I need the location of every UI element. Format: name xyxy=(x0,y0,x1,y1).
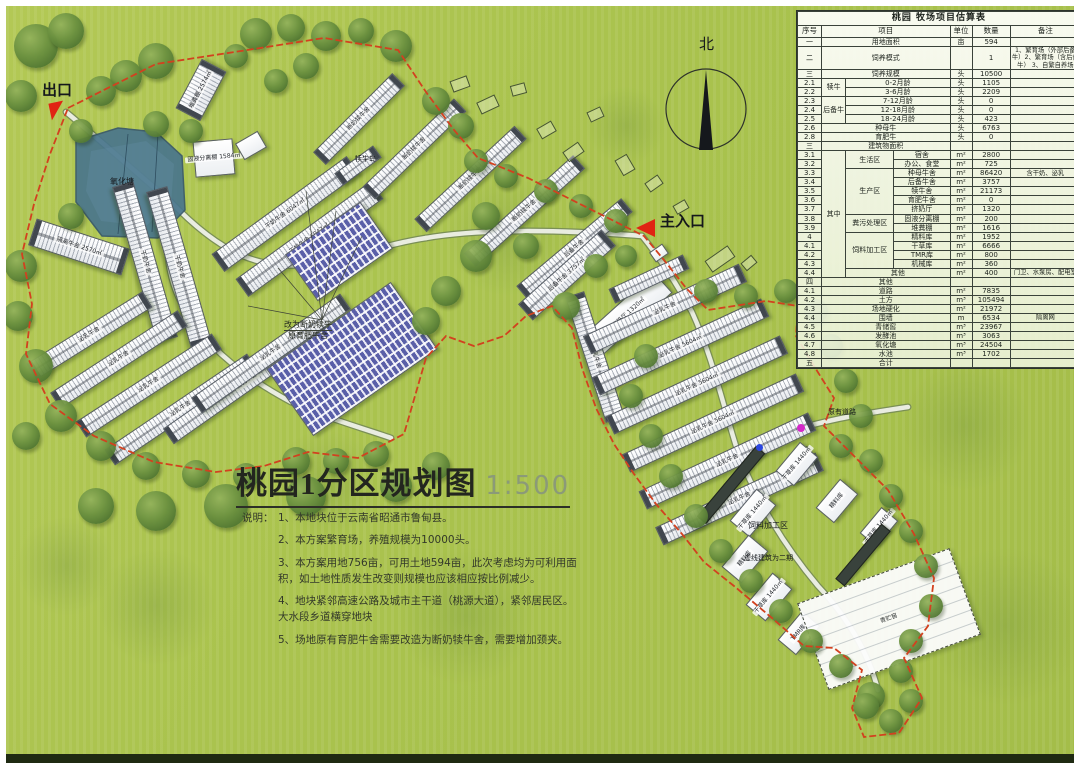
note-item: 2、本方案繁育场，养殖规模为10000头。 xyxy=(242,532,578,548)
table-cell: 宿舍 xyxy=(894,151,950,160)
table-row: 2.8育肥牛头0 xyxy=(798,133,1075,142)
table-cell: 合计 xyxy=(822,359,950,368)
table-cell: 2.1 xyxy=(798,78,822,87)
table-cell xyxy=(1010,359,1074,368)
table-cell: 23967 xyxy=(972,323,1010,332)
table-cell: 三 xyxy=(798,142,822,151)
table-cell xyxy=(1010,223,1074,232)
table-cell: 项目 xyxy=(822,26,950,38)
table-row: 4.5青储窖m³23967 xyxy=(798,323,1075,332)
table-cell: 1105 xyxy=(972,78,1010,87)
note-text: 1、本地块位于云南省昭通市鲁甸县。 xyxy=(278,510,453,526)
table-cell xyxy=(1010,214,1074,223)
table-cell xyxy=(1010,350,1074,359)
table-cell: m² xyxy=(950,214,972,223)
table-cell: 头 xyxy=(950,124,972,133)
table-cell: 粪污处理区 xyxy=(846,214,894,232)
table-cell: m² xyxy=(950,241,972,250)
table-row: 2.6种母牛头6763 xyxy=(798,124,1075,133)
table-cell: 头 xyxy=(950,87,972,96)
table-row: 3.1其中生活区宿舍m²2800 xyxy=(798,151,1075,160)
table-cell: 3.6 xyxy=(798,196,822,205)
table-row: 4.1道路m²7835 xyxy=(798,286,1075,295)
table-cell: 2.4 xyxy=(798,105,822,114)
table-cell: m² xyxy=(950,196,972,205)
annotation-line2: 原育肥牛舍 xyxy=(284,330,332,341)
table-cell: 3.7 xyxy=(798,205,822,214)
table-cell: 4.3 xyxy=(798,304,822,313)
table-cell: 4.1 xyxy=(798,286,822,295)
table-cell: 4.3 xyxy=(798,259,822,268)
table-cell: 序号 xyxy=(798,26,822,38)
table-cell: 4.4 xyxy=(798,314,822,323)
table-cell: 4.2 xyxy=(798,250,822,259)
note-item: 3、本方案用地756亩，可用土地594亩，此次考虑均为可利用面积，如土地性质发生… xyxy=(242,555,578,588)
table-cell xyxy=(1010,277,1074,286)
table-cell: 头 xyxy=(950,69,972,78)
existing-road-label: 原有道路 xyxy=(828,409,856,417)
notes-block: 说明：1、本地块位于云南省昭通市鲁甸县。2、本方案繁育场，养殖规模为10000头… xyxy=(242,510,578,654)
notes-label xyxy=(242,593,278,626)
table-cell: 1702 xyxy=(972,350,1010,359)
table-cell xyxy=(1010,259,1074,268)
table-cell: 1616 xyxy=(972,223,1010,232)
table-cell: 1 xyxy=(972,47,1010,70)
table-cell: m² xyxy=(950,232,972,241)
table-cell: 2.8 xyxy=(798,133,822,142)
table-cell: 0-2月龄 xyxy=(846,78,950,87)
table-cell: 1、繁育场（外部后备牛）2、繁育场（含后备牛） 3、自繁自养场 xyxy=(1010,47,1074,70)
table-cell: m² xyxy=(950,160,972,169)
table-cell xyxy=(1010,187,1074,196)
table-cell: 场地硬化 xyxy=(822,304,950,313)
table-cell: 0 xyxy=(972,133,1010,142)
table-row: 4.3场地硬化m²21972 xyxy=(798,304,1075,313)
site-plan-page: 改为断奶犊牛 原育肥牛舍 桃园1分区规划图 1:500 说明：1、本地块位于云南… xyxy=(0,0,1080,769)
table-cell: 2.5 xyxy=(798,114,822,123)
table-cell: 犊牛 xyxy=(822,78,846,96)
table-cell: 二 xyxy=(798,47,822,70)
table-cell: 头 xyxy=(950,114,972,123)
table-cell xyxy=(1010,133,1074,142)
table-cell: 四 xyxy=(798,277,822,286)
annotation-line1: 改为断奶犊牛 xyxy=(284,320,332,330)
table-cell: 4.7 xyxy=(798,341,822,350)
table-cell: m³ xyxy=(950,341,972,350)
table-cell: 种母牛舍 xyxy=(894,169,950,178)
table-row: 一用地面积亩594 xyxy=(798,38,1075,47)
table-cell: 4 xyxy=(798,232,822,241)
table-cell: 五 xyxy=(798,359,822,368)
table-cell: 用地面积 xyxy=(822,38,950,47)
table-cell: m³ xyxy=(950,323,972,332)
bottom-strip xyxy=(6,754,1074,763)
exit-label: 出口 xyxy=(42,82,72,99)
table-cell: 隔离网 xyxy=(1010,314,1074,323)
table-cell: 6534 xyxy=(972,314,1010,323)
table-cell: 3.1 xyxy=(798,151,822,160)
exit-marker xyxy=(48,101,66,121)
table-cell: 桃园 牧场项目估算表 xyxy=(798,12,1075,26)
table-cell: m² xyxy=(950,259,972,268)
table-cell xyxy=(1010,151,1074,160)
table-cell: 4.4 xyxy=(798,268,822,277)
table-cell xyxy=(1010,341,1074,350)
table-cell: 6763 xyxy=(972,124,1010,133)
table-cell: 400 xyxy=(972,268,1010,277)
table-cell: 3.5 xyxy=(798,187,822,196)
table-cell: 挤奶厅 xyxy=(894,205,950,214)
table-cell: 头 xyxy=(950,133,972,142)
table-row: 4.2土方m³105494 xyxy=(798,295,1075,304)
table-cell: 其他 xyxy=(846,268,950,277)
table-cell: 10500 xyxy=(972,69,1010,78)
note-text: 3、本方案用地756亩，可用土地594亩，此次考虑均为可利用面积，如土地性质发生… xyxy=(278,555,578,588)
table-row: 三饲养规模头10500 xyxy=(798,69,1075,78)
table-cell: 育肥牛 xyxy=(822,133,950,142)
table-cell: 2800 xyxy=(972,151,1010,160)
table-cell: m³ xyxy=(950,295,972,304)
table-cell: 0 xyxy=(972,196,1010,205)
table-cell: m³ xyxy=(950,350,972,359)
note-item: 5、场地原有育肥牛舍需要改造为断奶犊牛舍，需要增加颈夹。 xyxy=(242,632,578,648)
note-item: 4、地块紧邻高速公路及城市主干道（桃源大道），紧邻居民区。 大水段乡道横穿地块 xyxy=(242,593,578,626)
table-cell xyxy=(1010,323,1074,332)
table-cell: 6666 xyxy=(972,241,1010,250)
table-cell: 办公、食堂 xyxy=(894,160,950,169)
table-cell: 育肥牛舍 xyxy=(894,196,950,205)
table-cell: 精料库 xyxy=(894,232,950,241)
table-cell: 三 xyxy=(798,69,822,78)
table-cell xyxy=(1010,124,1074,133)
table-cell: 4.2 xyxy=(798,295,822,304)
table-cell: 3.3 xyxy=(798,169,822,178)
plan-map: 改为断奶犊牛 原育肥牛舍 桃园1分区规划图 1:500 说明：1、本地块位于云南… xyxy=(6,6,1074,763)
table-cell: 发酵池 xyxy=(822,332,950,341)
main-entrance-label: 主入口 xyxy=(660,213,705,230)
table-cell: 105494 xyxy=(972,295,1010,304)
table-cell: 建筑物面积 xyxy=(822,142,950,151)
table-row: 2.3后备牛7-12月龄头0 xyxy=(798,96,1075,105)
table-cell: 数量 xyxy=(972,26,1010,38)
table-cell xyxy=(1010,142,1074,151)
table-cell xyxy=(972,359,1010,368)
table-cell: 21972 xyxy=(972,304,1010,313)
note-item: 说明：1、本地块位于云南省昭通市鲁甸县。 xyxy=(242,510,578,526)
magenta-node-marker xyxy=(797,424,805,432)
table-cell: 其中 xyxy=(822,151,846,278)
table-cell xyxy=(1010,96,1074,105)
table-row: 三建筑物面积 xyxy=(798,142,1075,151)
table-cell xyxy=(1010,205,1074,214)
table-cell: 2.6 xyxy=(798,124,822,133)
table-cell: 12-18月龄 xyxy=(846,105,950,114)
table-cell xyxy=(972,277,1010,286)
table-cell: 生产区 xyxy=(846,169,894,214)
table-cell: 1320 xyxy=(972,205,1010,214)
notes-label: 说明： xyxy=(242,510,278,526)
table-cell xyxy=(1010,114,1074,123)
table-cell: 头 xyxy=(950,96,972,105)
table-cell: 4.6 xyxy=(798,332,822,341)
table-cell: 后备牛 xyxy=(822,96,846,123)
table-cell: 机械库 xyxy=(894,259,950,268)
table-cell: 86420 xyxy=(972,169,1010,178)
calf-island-label: 犊牛岛 xyxy=(355,156,376,164)
table-cell: 1952 xyxy=(972,232,1010,241)
table-cell: TMR库 xyxy=(894,250,950,259)
north-compass xyxy=(666,69,746,150)
table-cell xyxy=(1010,304,1074,313)
notes-label xyxy=(242,532,278,548)
table-cell: m² xyxy=(950,187,972,196)
conversion-annotation: 改为断奶犊牛 原育肥牛舍 xyxy=(284,320,332,342)
north-label: 北 xyxy=(699,36,714,53)
main-entrance-arrow xyxy=(636,219,655,237)
table-cell: 2209 xyxy=(972,87,1010,96)
table-cell: 后备牛舍 xyxy=(894,178,950,187)
table-cell xyxy=(1010,295,1074,304)
table-cell xyxy=(1010,241,1074,250)
table-cell: 饲料加工区 xyxy=(846,232,894,268)
table-cell: m² xyxy=(950,151,972,160)
notes-label xyxy=(242,632,278,648)
table-cell: 3.8 xyxy=(798,214,822,223)
note-text: 5、场地原有育肥牛舍需要改造为断奶犊牛舍，需要增加颈夹。 xyxy=(278,632,568,648)
table-cell: 单位 xyxy=(950,26,972,38)
table-header-row: 序号项目单位数量备注 xyxy=(798,26,1075,38)
table-cell: 生活区 xyxy=(846,151,894,169)
table-cell: 3.4 xyxy=(798,178,822,187)
table-cell xyxy=(950,277,972,286)
table-cell xyxy=(1010,38,1074,47)
table-cell: 备注 xyxy=(1010,26,1074,38)
table-cell: 21173 xyxy=(972,187,1010,196)
table-cell: 2.3 xyxy=(798,96,822,105)
note-text: 2、本方案繁育场，养殖规模为10000头。 xyxy=(278,532,476,548)
table-cell xyxy=(1010,250,1074,259)
table-cell: 594 xyxy=(972,38,1010,47)
table-cell: 3.2 xyxy=(798,160,822,169)
feed-area-label: 饲料加工区 xyxy=(748,522,788,531)
table-cell: 423 xyxy=(972,114,1010,123)
table-cell: 3.9 xyxy=(798,223,822,232)
table-cell: 18-24月龄 xyxy=(846,114,950,123)
table-cell: 围墙 xyxy=(822,314,950,323)
table-row: 二饲养模式11、繁育场（外部后备牛）2、繁育场（含后备牛） 3、自繁自养场 xyxy=(798,47,1075,70)
table-cell: 氧化塘 xyxy=(822,341,950,350)
table-cell xyxy=(1010,69,1074,78)
table-row: 五合计 xyxy=(798,359,1075,368)
table-cell: 堆粪棚 xyxy=(894,223,950,232)
blue-node-marker xyxy=(756,444,763,451)
table-cell: 200 xyxy=(972,214,1010,223)
table-cell xyxy=(1010,78,1074,87)
table-cell: m² xyxy=(950,268,972,277)
table-row: 2.1犊牛0-2月龄头1105 xyxy=(798,78,1075,87)
table-cell xyxy=(1010,87,1074,96)
table-cell: m² xyxy=(950,169,972,178)
title-block: 桃园1分区规划图 1:500 xyxy=(236,458,570,508)
table-cell xyxy=(950,142,972,151)
table-cell: 800 xyxy=(972,250,1010,259)
table-cell: 门卫、水泵房、配电室 xyxy=(1010,268,1074,277)
table-cell xyxy=(950,359,972,368)
pond-label: 氧化塘 xyxy=(110,178,134,187)
phase2-label: 虚线建筑为二期 xyxy=(744,555,793,563)
table-cell: 7-12月龄 xyxy=(846,96,950,105)
table-cell: 4.8 xyxy=(798,350,822,359)
table-cell: 土方 xyxy=(822,295,950,304)
estimate-table: 桃园 牧场项目估算表序号项目单位数量备注一用地面积亩594二饲养模式11、繁育场… xyxy=(796,10,1074,369)
table-cell: 7835 xyxy=(972,286,1010,295)
note-text: 4、地块紧邻高速公路及城市主干道（桃源大道），紧邻居民区。 大水段乡道横穿地块 xyxy=(278,593,573,626)
table-cell xyxy=(1010,105,1074,114)
table-cell: 0 xyxy=(972,105,1010,114)
table-cell: 其他 xyxy=(822,277,950,286)
table-cell: 饲养模式 xyxy=(822,47,950,70)
map-scale: 1:500 xyxy=(485,471,570,501)
table-cell xyxy=(950,47,972,70)
table-cell xyxy=(1010,196,1074,205)
notes-label xyxy=(242,555,278,588)
table-cell: m² xyxy=(950,304,972,313)
table-cell: 0 xyxy=(972,96,1010,105)
table-cell: 犊牛舍 xyxy=(894,187,950,196)
table-cell xyxy=(972,142,1010,151)
table-row: 4.8水池m³1702 xyxy=(798,350,1075,359)
table-cell: 亩 xyxy=(950,38,972,47)
table-cell: 头 xyxy=(950,105,972,114)
table-cell: 725 xyxy=(972,160,1010,169)
table-cell: 种母牛 xyxy=(822,124,950,133)
table-cell: 道路 xyxy=(822,286,950,295)
table-cell xyxy=(1010,286,1074,295)
table-cell: 4.1 xyxy=(798,241,822,250)
table-row: 4.7氧化塘m³24504 xyxy=(798,341,1075,350)
table-cell: 干草库 xyxy=(894,241,950,250)
table-cell: 24504 xyxy=(972,341,1010,350)
table-cell: 饲养规模 xyxy=(822,69,950,78)
table-cell: m² xyxy=(950,205,972,214)
map-title: 桃园1分区规划图 1:500 xyxy=(236,458,570,508)
table-cell: 360 xyxy=(972,259,1010,268)
table-row: 4.6发酵池m³3063 xyxy=(798,332,1075,341)
table-cell: 3063 xyxy=(972,332,1010,341)
table-cell: m² xyxy=(950,286,972,295)
table-cell xyxy=(1010,178,1074,187)
table-cell: 2.2 xyxy=(798,87,822,96)
table-cell: 含干奶、泌乳 xyxy=(1010,169,1074,178)
annotation-leader-lines xyxy=(248,191,362,320)
table-cell: m xyxy=(950,314,972,323)
table-cell xyxy=(1010,232,1074,241)
table-row: 4.4围墙m6534隔离网 xyxy=(798,314,1075,323)
table-cell: m² xyxy=(950,178,972,187)
table-cell: 3-6月龄 xyxy=(846,87,950,96)
table-cell: 青储窖 xyxy=(822,323,950,332)
estimate-table-grid: 桃园 牧场项目估算表序号项目单位数量备注一用地面积亩594二饲养模式11、繁育场… xyxy=(797,11,1074,368)
table-cell: 4.5 xyxy=(798,323,822,332)
table-row: 四其他 xyxy=(798,277,1075,286)
table-cell: 头 xyxy=(950,78,972,87)
table-cell xyxy=(1010,160,1074,169)
table-cell: 一 xyxy=(798,38,822,47)
table-cell: m³ xyxy=(950,332,972,341)
table-cell xyxy=(1010,332,1074,341)
table-cell: m² xyxy=(950,223,972,232)
table-cell: m² xyxy=(950,250,972,259)
table-title-row: 桃园 牧场项目估算表 xyxy=(798,12,1075,26)
table-cell: 3757 xyxy=(972,178,1010,187)
table-cell: 水池 xyxy=(822,350,950,359)
table-cell: 固液分离棚 xyxy=(894,214,950,223)
